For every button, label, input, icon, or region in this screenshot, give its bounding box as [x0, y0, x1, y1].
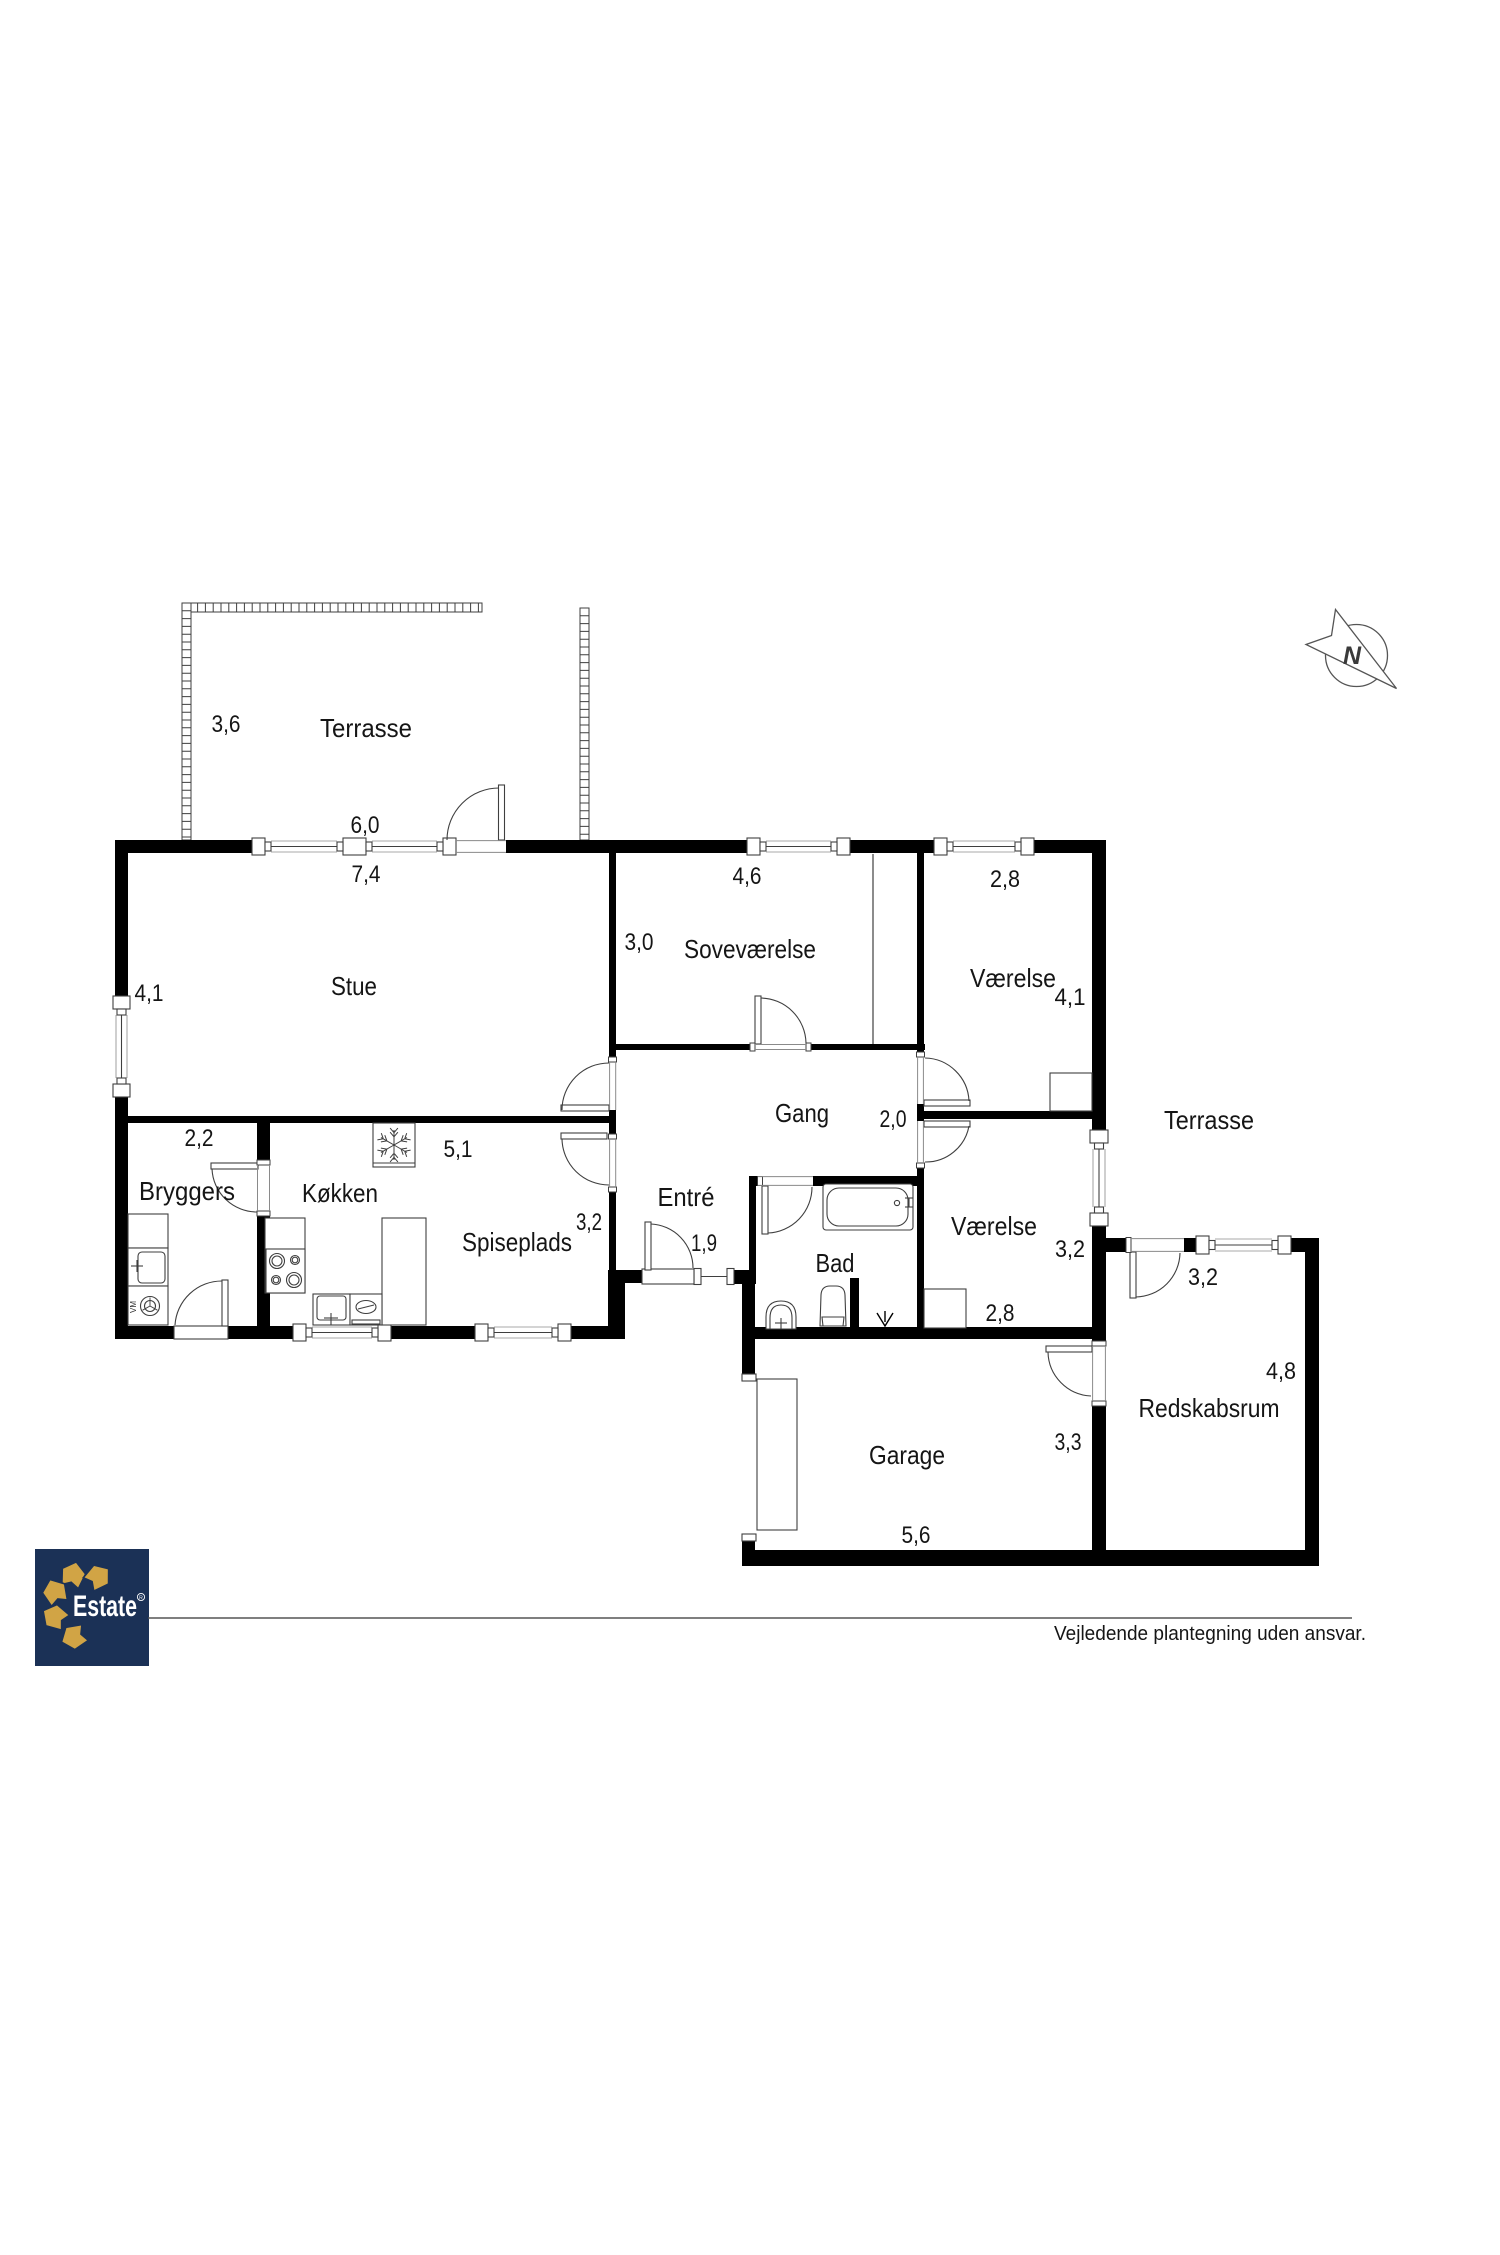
svg-text:4,1: 4,1 [1055, 984, 1086, 1011]
svg-text:Vejledende plantegning uden an: Vejledende plantegning uden ansvar. [1054, 1623, 1366, 1645]
svg-text:R: R [139, 1596, 143, 1602]
svg-text:4,1: 4,1 [135, 980, 164, 1007]
svg-text:Terrasse: Terrasse [1164, 1105, 1254, 1135]
svg-text:3,6: 3,6 [212, 711, 241, 738]
svg-text:Terrasse: Terrasse [320, 713, 412, 743]
svg-text:Gang: Gang [775, 1098, 829, 1128]
svg-text:Stue: Stue [331, 971, 377, 1001]
svg-text:4,8: 4,8 [1266, 1358, 1296, 1385]
svg-text:Garage: Garage [869, 1440, 945, 1470]
svg-text:2,8: 2,8 [986, 1300, 1015, 1327]
svg-text:3,3: 3,3 [1055, 1429, 1082, 1456]
svg-text:Værelse: Værelse [951, 1211, 1037, 1241]
svg-text:5,1: 5,1 [444, 1136, 473, 1163]
svg-text:Redskabsrum: Redskabsrum [1139, 1393, 1280, 1423]
svg-text:Køkken: Køkken [302, 1178, 378, 1208]
svg-text:2,8: 2,8 [990, 866, 1020, 893]
svg-text:Spiseplads: Spiseplads [462, 1227, 572, 1257]
svg-text:5,6: 5,6 [902, 1522, 931, 1549]
svg-text:Estate: Estate [73, 1590, 137, 1623]
svg-text:6,0: 6,0 [351, 812, 380, 839]
svg-text:Soveværelse: Soveværelse [684, 934, 816, 964]
svg-text:3,0: 3,0 [625, 929, 654, 956]
svg-text:4,6: 4,6 [733, 863, 762, 890]
svg-text:Værelse: Værelse [970, 963, 1056, 993]
svg-text:N: N [1343, 642, 1362, 670]
svg-text:2,2: 2,2 [185, 1125, 214, 1152]
svg-text:Bryggers: Bryggers [139, 1176, 235, 1206]
svg-text:3,2: 3,2 [576, 1209, 602, 1236]
svg-text:2,0: 2,0 [880, 1106, 907, 1133]
svg-text:VM: VM [129, 1301, 138, 1313]
svg-text:Bad: Bad [816, 1248, 855, 1278]
svg-text:1,9: 1,9 [691, 1230, 717, 1257]
svg-text:3,2: 3,2 [1055, 1236, 1085, 1263]
svg-text:7,4: 7,4 [352, 861, 381, 888]
svg-text:3,2: 3,2 [1188, 1264, 1218, 1291]
svg-text:Entré: Entré [658, 1182, 715, 1212]
